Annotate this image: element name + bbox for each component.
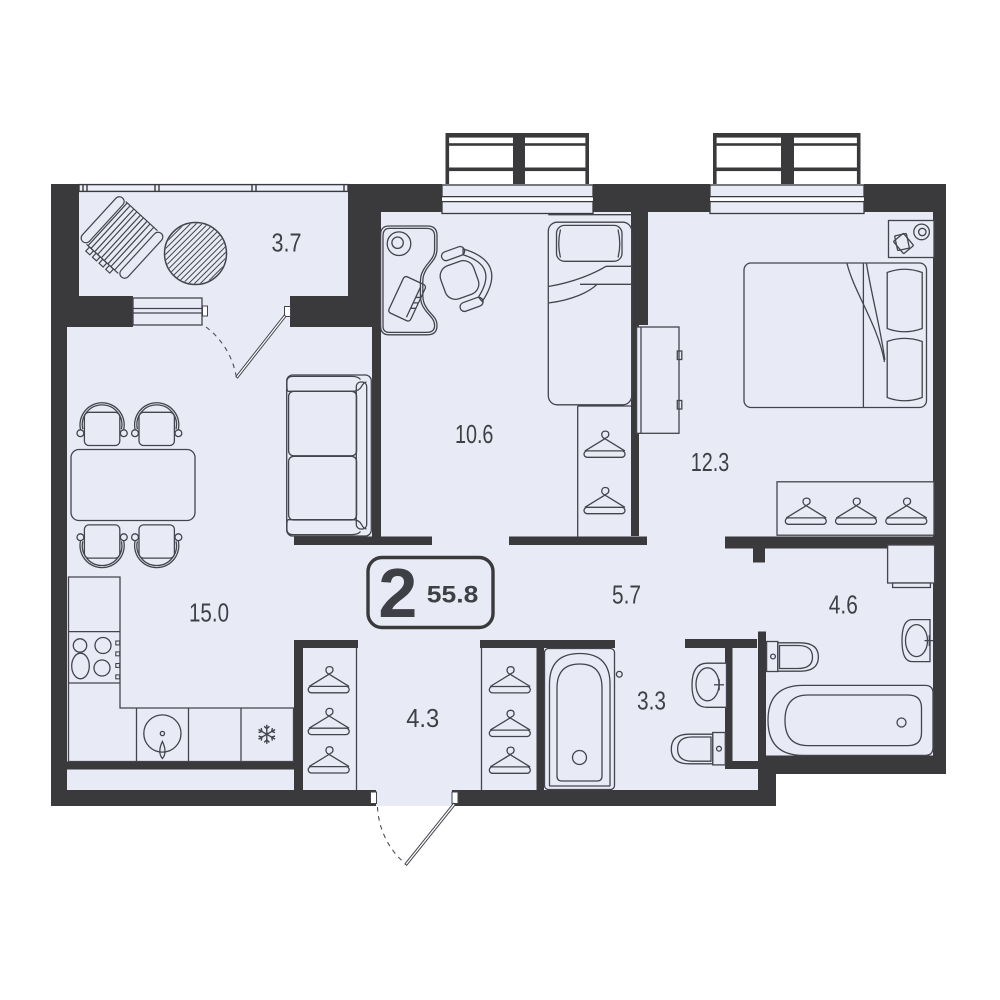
svg-text:2: 2 xyxy=(378,554,417,632)
svg-text:12.3: 12.3 xyxy=(691,449,730,477)
svg-text:4.6: 4.6 xyxy=(829,592,858,620)
svg-text:3.3: 3.3 xyxy=(637,688,666,716)
svg-text:5.7: 5.7 xyxy=(612,582,641,610)
svg-text:15.0: 15.0 xyxy=(189,600,229,628)
svg-text:4.3: 4.3 xyxy=(406,705,439,733)
svg-text:55.8: 55.8 xyxy=(427,581,479,608)
svg-text:3.7: 3.7 xyxy=(272,230,302,258)
svg-text:10.6: 10.6 xyxy=(455,421,494,449)
